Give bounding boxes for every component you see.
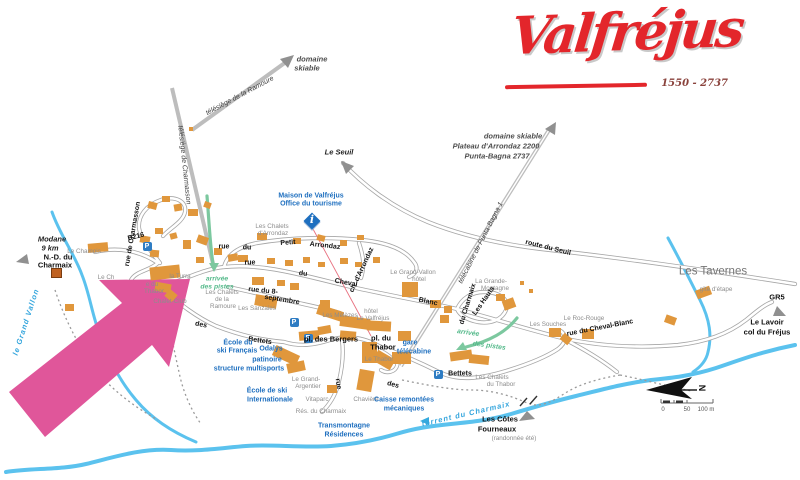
map-label-rue: rue	[245, 260, 256, 267]
map-label-internationale: Internationale	[247, 397, 293, 404]
building	[277, 280, 285, 286]
building	[285, 260, 293, 266]
building	[290, 283, 299, 290]
building	[402, 282, 418, 297]
map-label-modane: Modane	[38, 235, 66, 243]
map-label-vitaparc: Vitaparc	[306, 397, 329, 403]
map-label-du: du	[243, 245, 252, 252]
map-label-le-chamois: Le Chamois	[67, 249, 101, 255]
building	[318, 262, 325, 267]
map-label-gare: gare	[403, 340, 418, 347]
map-label-arrivée: arrivée	[206, 277, 228, 284]
map-label-la-turra: la Turra	[169, 274, 190, 280]
logo-underline	[505, 83, 647, 89]
map-label-les-côtes: Les Côtes	[482, 415, 518, 423]
building	[549, 328, 561, 337]
building	[440, 315, 449, 323]
map-label-9-km: 9 km	[41, 244, 58, 252]
building	[173, 203, 182, 211]
building	[150, 250, 160, 258]
building	[303, 257, 310, 263]
map-label-ski-français: ski Français	[217, 348, 257, 355]
map-label-randonnée-été: (randonnée été)	[492, 436, 537, 442]
map-label-le-roc-rouge: Le Roc-Rouge	[564, 316, 605, 322]
map-label-pl-des-bergers: pl. des Bergers	[304, 335, 358, 343]
map-label-du-thabor: du Thabor	[487, 382, 516, 388]
valfrejus-resort-map: i PPPPtélésiège de Charmassontélésiège d…	[0, 0, 800, 480]
map-label-les-mélèzes: Les Mélèzes	[322, 313, 357, 319]
map-label-domaine-skiable: domaine skiable	[484, 132, 542, 140]
map-label-chalet-club: Chalet-Club	[153, 299, 186, 305]
map-label-gr5: GR5	[769, 293, 784, 301]
map-label-maison-de-valfréjus: Maison de Valfréjus	[278, 193, 343, 200]
map-label-les-tavernes: Les Tavernes	[679, 266, 747, 278]
map-label-0: 0	[661, 407, 664, 413]
resort-name: Valfréjus	[508, 0, 745, 67]
building	[155, 228, 163, 234]
map-label-télécabine: télécabine	[397, 349, 431, 356]
map-label-charmaix: Charmaix	[38, 261, 72, 269]
map-label-d-arrondaz: d'Arrondaz	[258, 231, 288, 237]
building	[183, 240, 191, 249]
map-label-rés-du-charmaix: Rés. du Charmaix	[296, 409, 346, 415]
map-label-ramoure: Ramoure	[210, 304, 236, 310]
resort-logo: Valfréjus 1550 - 2737	[500, 0, 800, 100]
map-label-pl-du: pl. du	[371, 334, 391, 342]
map-label-thabor: Thabor	[370, 343, 395, 351]
map-label-50: 50	[684, 407, 691, 413]
building	[469, 354, 490, 365]
map-label-école-du: École du	[223, 340, 252, 347]
map-label-école-de-ski: École de ski	[247, 388, 287, 395]
map-label-plateau-d-arrondaz-2200: Plateau d'Arrondaz 2200	[453, 142, 540, 150]
building	[267, 258, 275, 264]
map-label-fourneaux: Fourneaux	[478, 425, 516, 433]
map-label-les-sanzaies: Les Sanzaies	[238, 306, 276, 312]
resort-elevation: 1550 - 2737	[661, 78, 728, 89]
map-label-résidences: Résidences	[325, 432, 364, 439]
building	[252, 277, 264, 285]
building	[162, 196, 170, 202]
map-label-le-lavoir: Le Lavoir	[750, 318, 783, 326]
parking-icon: P	[290, 318, 299, 327]
map-label-petit: Petit	[280, 239, 296, 247]
map-label-thabor: Thabor	[144, 289, 164, 295]
building	[65, 304, 74, 311]
map-label-le-ch: Le Ch	[98, 275, 115, 281]
building	[340, 258, 348, 264]
map-label-le-thabor: Le Thabor	[365, 357, 394, 363]
map-label-office-du-tourisme: Office du tourisme	[280, 201, 342, 208]
parking-icon: P	[143, 242, 152, 251]
map-label-transmontagne: Transmontagne	[318, 423, 370, 430]
map-label-domaine: domaine	[297, 55, 328, 63]
map-label-rue: rue	[219, 244, 230, 251]
building	[520, 281, 524, 285]
map-label-patinoire: patinoire	[252, 357, 282, 364]
map-label-caisse-remontées: Caisse remontées	[374, 397, 434, 404]
map-label-mécaniques: mécaniques	[384, 406, 424, 413]
map-label-le-seuil: Le Seuil	[325, 148, 354, 156]
map-label-gîte-d-étape: gîte d'étape	[700, 287, 733, 293]
building	[357, 235, 364, 240]
parking-icon: P	[434, 370, 443, 379]
map-label-100-m: 100 m	[698, 407, 715, 413]
map-label-n: N	[699, 385, 708, 392]
building	[189, 127, 193, 131]
building	[188, 209, 198, 216]
map-label-du: du	[298, 270, 307, 278]
map-label-skiable: skiable	[294, 64, 319, 72]
map-label-argentier: Argentier	[295, 384, 321, 390]
chapel-building	[52, 269, 61, 277]
map-label-odalys: Odalys	[259, 346, 282, 353]
map-label-hôtel: hôtel	[412, 277, 426, 283]
map-label-bettets: Bettets	[448, 371, 472, 378]
map-label-punta-bagna-2737: Punta-Bagna 2737	[464, 152, 529, 160]
building	[340, 240, 347, 246]
building	[444, 306, 452, 313]
map-label-col-du-fréjus: col du Fréjus	[744, 328, 791, 336]
map-label-structure-multisports: structure multisports	[214, 366, 284, 373]
map-label-les-souches: Les Souches	[530, 322, 566, 328]
building	[373, 257, 380, 263]
building	[196, 257, 204, 263]
building	[529, 289, 533, 293]
map-label-le-valfréjus: Le Valfréjus	[357, 316, 390, 322]
